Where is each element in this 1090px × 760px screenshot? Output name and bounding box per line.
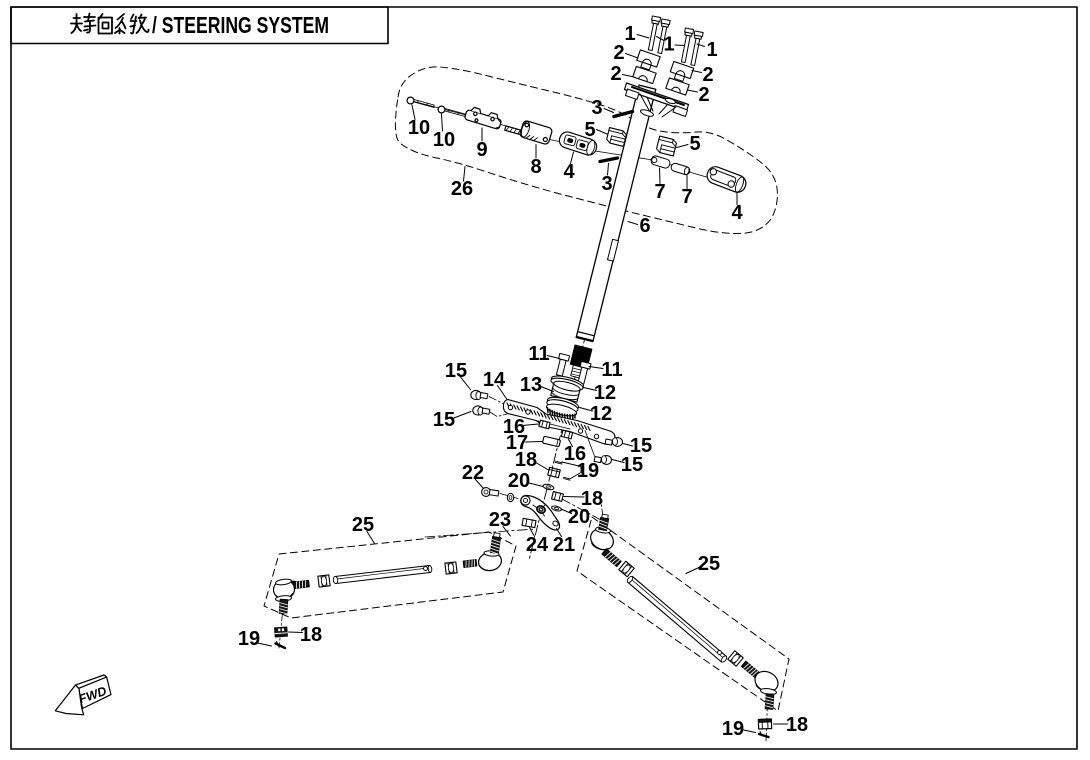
svg-text:10: 10	[433, 129, 455, 151]
svg-text:12: 12	[590, 403, 612, 425]
svg-text:3: 3	[601, 173, 612, 195]
svg-text:2: 2	[610, 63, 621, 85]
svg-text:2: 2	[702, 64, 713, 86]
svg-text:3: 3	[591, 97, 602, 119]
svg-text:20: 20	[508, 470, 530, 492]
svg-text:2: 2	[613, 42, 624, 64]
svg-text:19: 19	[722, 718, 744, 740]
svg-text:7: 7	[681, 186, 692, 208]
svg-text:26: 26	[451, 178, 473, 200]
svg-text:15: 15	[621, 454, 643, 476]
svg-text:1: 1	[706, 39, 717, 61]
svg-text:7: 7	[654, 181, 665, 203]
svg-text:19: 19	[238, 628, 260, 650]
svg-text:5: 5	[584, 119, 595, 141]
svg-text:15: 15	[445, 360, 467, 382]
svg-text:25: 25	[698, 553, 720, 575]
svg-text:6: 6	[639, 215, 650, 237]
svg-text:/ STEERING SYSTEM: / STEERING SYSTEM	[152, 12, 329, 38]
svg-text:18: 18	[515, 449, 537, 471]
svg-text:13: 13	[520, 374, 542, 396]
svg-text:24: 24	[526, 534, 549, 556]
svg-text:5: 5	[689, 133, 700, 155]
svg-text:22: 22	[462, 462, 484, 484]
svg-text:1: 1	[624, 23, 635, 45]
svg-text:25: 25	[352, 514, 374, 536]
svg-text:1: 1	[663, 34, 674, 56]
svg-text:12: 12	[594, 382, 616, 404]
svg-text:11: 11	[601, 359, 622, 381]
svg-text:10: 10	[408, 117, 430, 139]
svg-text:8: 8	[530, 156, 541, 178]
svg-text:23: 23	[489, 509, 511, 531]
svg-text:15: 15	[433, 409, 455, 431]
svg-text:14: 14	[483, 369, 506, 391]
svg-text:4: 4	[563, 161, 575, 183]
svg-text:9: 9	[476, 139, 487, 161]
svg-text:18: 18	[786, 714, 808, 736]
svg-text:4: 4	[731, 202, 743, 224]
svg-text:11: 11	[528, 343, 549, 365]
svg-text:21: 21	[553, 534, 575, 556]
svg-text:18: 18	[300, 624, 322, 646]
svg-text:20: 20	[568, 506, 590, 528]
svg-text:2: 2	[698, 84, 709, 106]
svg-text:19: 19	[577, 460, 599, 482]
